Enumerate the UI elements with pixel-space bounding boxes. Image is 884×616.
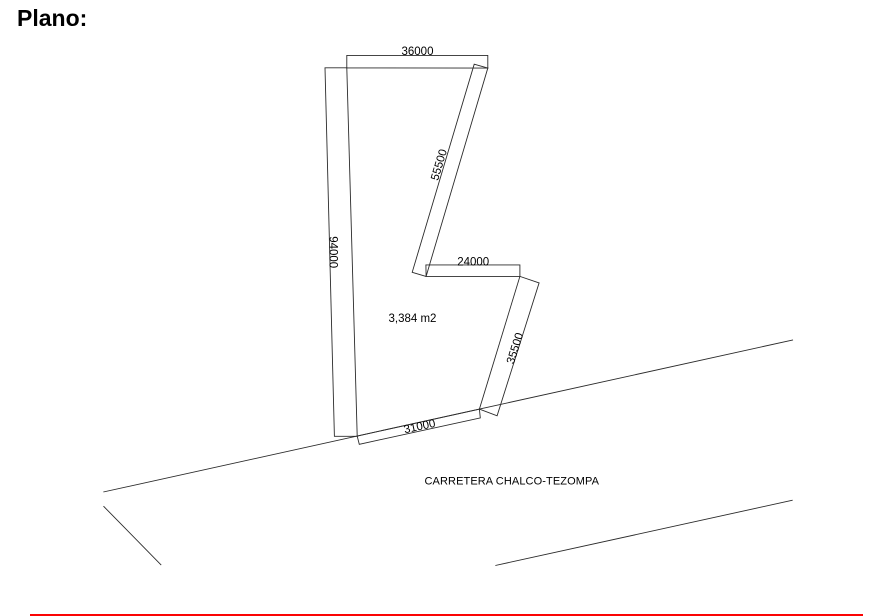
svg-text:36000: 36000 <box>402 46 434 58</box>
svg-text:35500: 35500 <box>505 331 526 365</box>
svg-text:24000: 24000 <box>457 257 489 269</box>
svg-text:94000: 94000 <box>327 236 339 268</box>
svg-text:55500: 55500 <box>429 148 450 182</box>
svg-text:31000: 31000 <box>403 418 437 437</box>
svg-text:CARRETERA CHALCO-TEZOMPA: CARRETERA CHALCO-TEZOMPA <box>425 476 600 488</box>
svg-text:3,384 m2: 3,384 m2 <box>389 313 437 325</box>
